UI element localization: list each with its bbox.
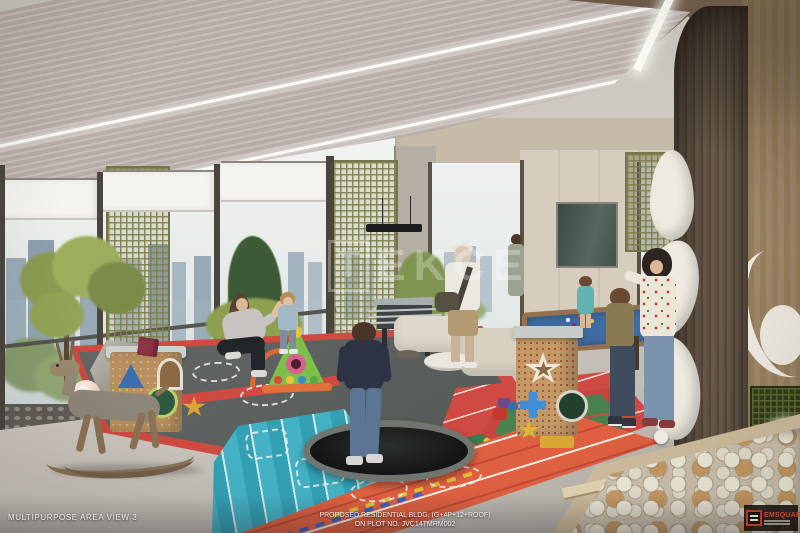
stamp-monogram-icon [746,510,762,526]
horse-eye [56,364,59,367]
shoe [366,454,383,463]
shoe [225,351,242,360]
leg [289,330,296,350]
person-boy-center [338,322,390,474]
pendant-cord [382,198,383,226]
shoe [608,416,622,426]
floral-blouse [640,276,676,338]
side-table [396,350,420,359]
shirt [278,305,298,331]
leg [465,336,474,362]
project-caption: PROPOSED RESIDENTIAL BLDG. (G+4P+12+ROOF… [255,511,555,529]
roller-blind [103,170,215,212]
shoulder-bag [435,292,459,312]
person-girl-background [572,276,598,334]
jeans-leg [644,336,659,420]
shoe [464,362,477,368]
multipurpose-playroom-render: T EKCE MULTIPURPOSE AREA VIEW 3 PROPOSED… [0,0,800,533]
stamp-company-name: EMSQUARE [764,512,800,519]
window-mullion [0,165,5,430]
dress [577,286,594,314]
shorts [448,310,478,336]
slide-knob [654,430,668,444]
stamp-small-print [764,520,790,522]
roller-blind [221,161,331,202]
shoe [449,362,462,368]
toy-bench [540,436,574,448]
indoor-tree-foliage [30,292,84,338]
dress [508,244,524,296]
sweater [344,340,384,390]
shape-sorter-tower [516,326,586,448]
leg [580,314,585,328]
person-woman-right [626,248,692,430]
shoe [346,456,363,465]
project-caption-line2: ON PLOT NO. JVC14TMRM002 [255,520,555,529]
wooden-rocking-horse [46,340,202,476]
leg [251,346,265,372]
slide-section [760,305,800,365]
column-shadow [674,6,748,156]
jeans-leg [659,336,674,420]
roller-blind [0,178,97,220]
person-elderly-man [440,244,500,370]
circle-cutout [556,390,588,422]
leg [451,336,460,362]
pendant-light [366,224,422,232]
leg [586,314,591,328]
hair [352,322,376,342]
consultant-stamp: EMSQUARE [744,505,798,531]
block-toy [508,402,518,410]
shoe [642,418,658,426]
shoe [251,370,267,377]
billiard-ball [566,318,570,322]
project-caption-line1: PROPOSED RESIDENTIAL BLDG. (G+4P+12+ROOF… [255,511,555,520]
shoe [279,349,288,354]
toy-bag [493,408,507,420]
stamp-small-print [764,523,790,525]
shoe [659,420,675,428]
pendant-cord [410,196,411,226]
jeans-leg [363,388,382,459]
horse-body [67,389,161,423]
view-label: MULTIPURPOSE AREA VIEW 3 [8,513,137,522]
face [650,260,663,274]
leg [280,330,287,350]
indoor-tree-foliage [88,262,146,314]
horse-tail [154,384,170,397]
wall-mirror [556,202,618,268]
person-woman-background [504,234,528,304]
toy-ball [286,376,294,384]
stamp-text: EMSQUARE [764,512,800,525]
person-toddler-girl [272,292,306,358]
mat-dashed-square [244,427,289,461]
shoe [289,349,298,354]
